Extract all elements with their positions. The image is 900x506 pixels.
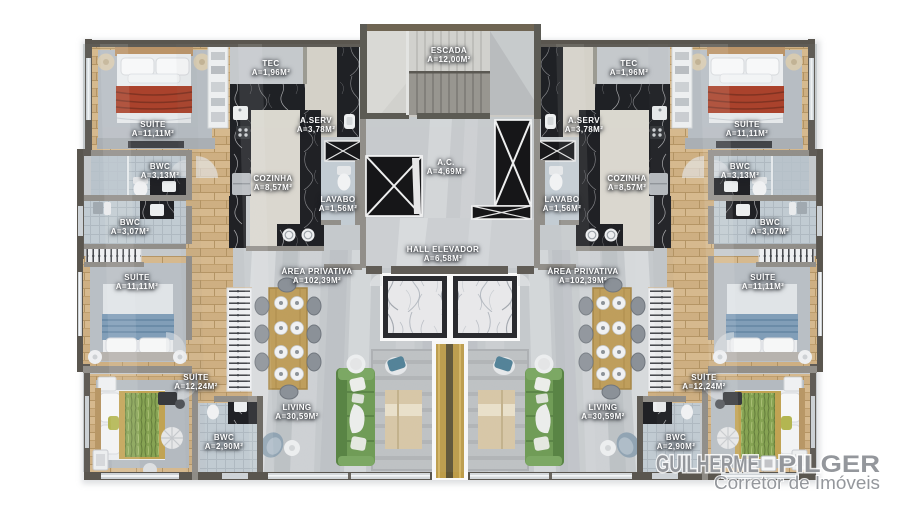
svg-text:LIVING: LIVING	[282, 403, 311, 412]
svg-text:TEC: TEC	[620, 59, 637, 68]
svg-text:A=1,96M²: A=1,96M²	[252, 68, 291, 77]
svg-text:ÁREA PRIVATIVA: ÁREA PRIVATIVA	[547, 267, 618, 276]
svg-text:SUÍTE: SUÍTE	[750, 273, 776, 282]
svg-text:A=4,69M²: A=4,69M²	[427, 167, 466, 176]
svg-text:A=8,57M²: A=8,57M²	[608, 183, 647, 192]
svg-text:TEC: TEC	[262, 59, 279, 68]
svg-text:BWC: BWC	[760, 218, 780, 227]
svg-text:COZINHA: COZINHA	[607, 174, 646, 183]
svg-text:LIVING: LIVING	[588, 403, 617, 412]
svg-text:SUÍTE: SUÍTE	[124, 273, 150, 282]
svg-text:Corretor de Imóveis: Corretor de Imóveis	[714, 473, 880, 493]
svg-text:A=1,96M²: A=1,96M²	[610, 68, 649, 77]
svg-text:A=12,00M²: A=12,00M²	[427, 55, 470, 64]
svg-text:COZINHA: COZINHA	[253, 174, 292, 183]
svg-text:A=11,11M²: A=11,11M²	[116, 282, 159, 291]
svg-text:A=1,56M²: A=1,56M²	[319, 204, 358, 213]
svg-text:SUÍTE: SUÍTE	[691, 373, 717, 382]
svg-text:A=102,39M²: A=102,39M²	[293, 276, 341, 285]
svg-text:A=3,07M²: A=3,07M²	[751, 227, 790, 236]
svg-text:A=8,57M²: A=8,57M²	[254, 183, 293, 192]
svg-text:A=12,24M²: A=12,24M²	[682, 382, 725, 391]
svg-text:A=3,78M²: A=3,78M²	[297, 125, 336, 134]
svg-text:ESCADA: ESCADA	[431, 46, 467, 55]
svg-text:LAVABO: LAVABO	[545, 195, 580, 204]
svg-text:BWC: BWC	[666, 433, 686, 442]
svg-text:A=3,78M²: A=3,78M²	[565, 125, 604, 134]
svg-text:SUÍTE: SUÍTE	[140, 120, 166, 129]
svg-text:ÁREA PRIVATIVA: ÁREA PRIVATIVA	[281, 267, 352, 276]
svg-text:A=12,24M²: A=12,24M²	[174, 382, 217, 391]
svg-text:A=3,13M²: A=3,13M²	[721, 171, 760, 180]
svg-text:SUÍTE: SUÍTE	[734, 120, 760, 129]
svg-text:A=2,90M²: A=2,90M²	[205, 442, 244, 451]
svg-text:BWC: BWC	[214, 433, 234, 442]
svg-text:A=11,11M²: A=11,11M²	[132, 129, 175, 138]
svg-text:BWC: BWC	[120, 218, 140, 227]
svg-text:HALL ELEVADOR: HALL ELEVADOR	[407, 245, 479, 254]
svg-text:A=3,07M²: A=3,07M²	[111, 227, 150, 236]
svg-text:A=102,39M²: A=102,39M²	[559, 276, 607, 285]
svg-text:A=11,11M²: A=11,11M²	[742, 282, 785, 291]
svg-text:A.SERV: A.SERV	[568, 116, 600, 125]
svg-text:BWC: BWC	[150, 162, 170, 171]
svg-text:A=3,13M²: A=3,13M²	[141, 171, 180, 180]
svg-text:A=11,11M²: A=11,11M²	[726, 129, 769, 138]
svg-text:LAVABO: LAVABO	[321, 195, 356, 204]
svg-text:A=30,59M²: A=30,59M²	[581, 412, 624, 421]
svg-text:A.C.: A.C.	[437, 158, 455, 167]
svg-text:A.SERV: A.SERV	[300, 116, 332, 125]
svg-text:A=6,58M²: A=6,58M²	[424, 254, 463, 263]
svg-text:A=1,56M²: A=1,56M²	[543, 204, 582, 213]
svg-text:A=30,59M²: A=30,59M²	[275, 412, 318, 421]
svg-text:SUÍTE: SUÍTE	[183, 373, 209, 382]
svg-text:BWC: BWC	[730, 162, 750, 171]
svg-text:A=2,90M²: A=2,90M²	[657, 442, 696, 451]
